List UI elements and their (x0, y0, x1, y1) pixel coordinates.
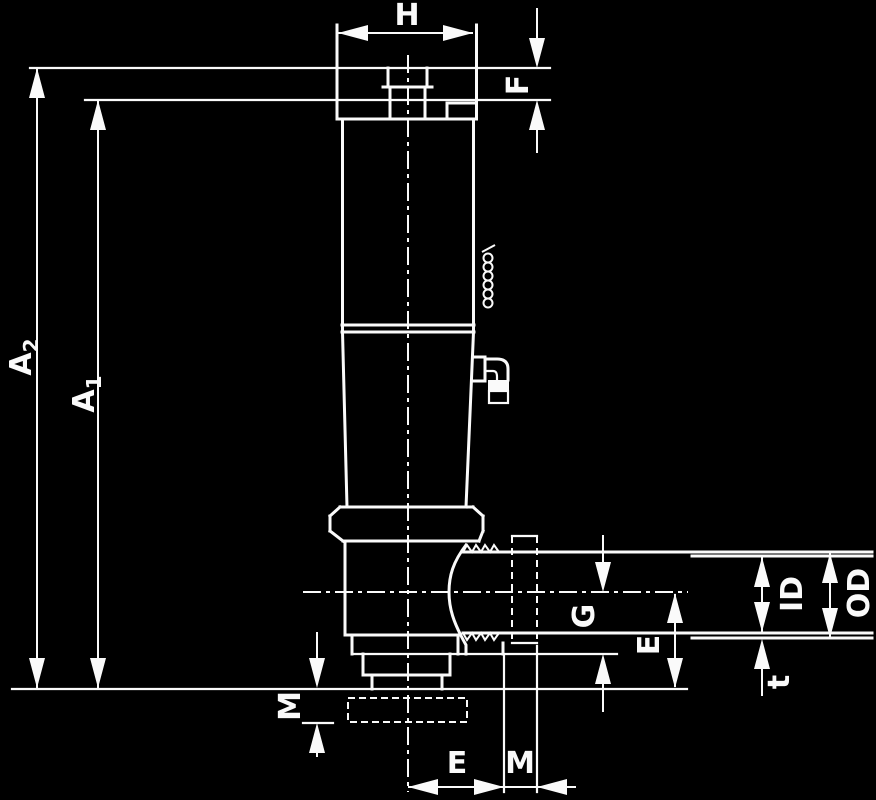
actuator-outline (30, 25, 550, 541)
dimension-e-bottom-label: E (447, 746, 468, 781)
dimension-h-label: H (394, 0, 419, 33)
dimension-t: t (754, 639, 797, 696)
dimension-a2-label: A2 (4, 338, 43, 375)
dimension-a1: A1 (67, 100, 106, 688)
dimension-id-label: ID (775, 576, 810, 612)
dimension-m-left: M (273, 632, 333, 757)
dimension-m-bottom-label: M (505, 746, 535, 781)
dimension-f: F (501, 8, 545, 153)
dimension-h: H (338, 0, 473, 41)
dimension-e-bottom: E M (408, 646, 576, 795)
dimension-e-right-label: E (632, 635, 667, 656)
dimension-a2: A2 (4, 68, 45, 688)
dimension-a1-label: A1 (67, 375, 106, 412)
bell-flange (330, 507, 483, 541)
dimension-od: OD (822, 553, 876, 638)
spring-coil-detail (482, 245, 495, 308)
dimension-id: ID (754, 557, 810, 632)
dimension-e-right: E (632, 593, 683, 688)
dimension-g-label: G (567, 604, 602, 629)
technical-drawing: H F A2 A1 M E (0, 0, 876, 800)
dimension-g: G (567, 535, 611, 712)
dimension-m-left-label: M (273, 691, 308, 721)
dimension-t-label: t (762, 675, 797, 689)
dimension-f-label: F (501, 75, 536, 96)
centerlines (303, 55, 688, 792)
dimension-od-label: OD (842, 568, 876, 618)
port-outline (463, 536, 872, 644)
top-notch (447, 103, 474, 119)
side-fitting-detail (474, 357, 509, 403)
